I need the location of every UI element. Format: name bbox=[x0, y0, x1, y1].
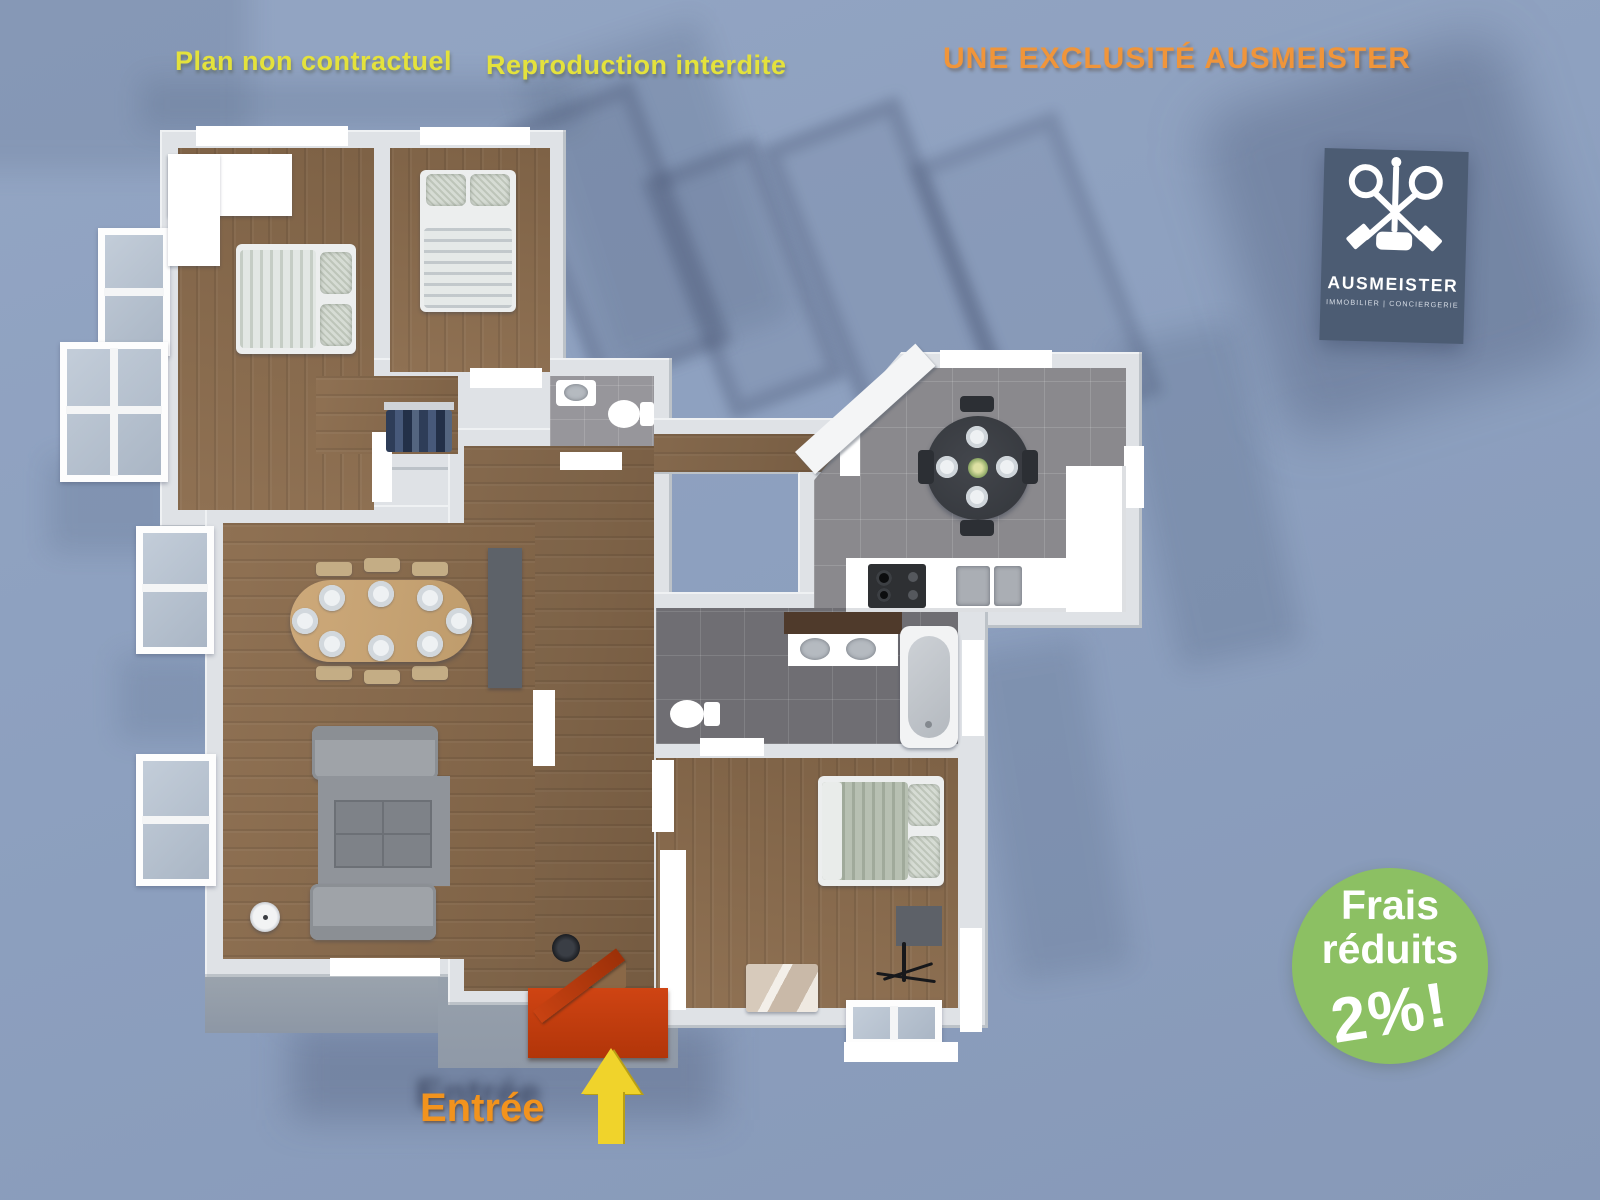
promo-badge: Frais réduits 2%! bbox=[1292, 868, 1488, 1064]
place-setting bbox=[319, 631, 345, 657]
pillow bbox=[320, 252, 352, 294]
window-sill bbox=[1124, 446, 1144, 508]
badge-line2: réduits bbox=[1322, 927, 1459, 971]
duvet-fold bbox=[822, 782, 842, 880]
entrance-arrow-icon bbox=[581, 1048, 641, 1094]
dining-chair bbox=[412, 562, 448, 576]
bathroom-sink bbox=[800, 638, 830, 660]
kitchen-counter-side bbox=[1066, 466, 1126, 612]
coffee-table bbox=[334, 800, 432, 868]
place-setting bbox=[319, 585, 345, 611]
sideboard bbox=[488, 548, 522, 688]
reproduction-notice: Reproduction interdite bbox=[486, 50, 787, 81]
closet-rail bbox=[384, 402, 454, 410]
opening-bedroom2 bbox=[470, 368, 542, 388]
dresser bbox=[168, 154, 220, 266]
balcony-window bbox=[136, 754, 216, 886]
pillow bbox=[426, 174, 466, 206]
kitchen-chair bbox=[960, 520, 994, 536]
bedroom-east-shadow bbox=[967, 638, 1132, 982]
dining-chair bbox=[316, 562, 352, 576]
dining-chair bbox=[412, 666, 448, 680]
place-setting bbox=[292, 608, 318, 634]
duvet bbox=[240, 250, 316, 348]
floor-lamp bbox=[250, 902, 280, 932]
entrance-wall-segment bbox=[660, 850, 686, 1010]
entrance-label: Entrée bbox=[420, 1086, 545, 1131]
window-sill bbox=[330, 958, 440, 976]
balcony-window bbox=[60, 342, 168, 482]
wc-sink bbox=[556, 380, 596, 406]
entrance-arrow-icon bbox=[598, 1092, 623, 1144]
plan-disclaimer: Plan non contractuel bbox=[175, 46, 452, 77]
window-sill bbox=[940, 350, 1052, 368]
pillow bbox=[470, 174, 510, 206]
opening-wc bbox=[560, 452, 622, 470]
place-setting bbox=[996, 456, 1018, 478]
sofa bbox=[310, 884, 436, 940]
place-setting bbox=[446, 608, 472, 634]
bench bbox=[746, 964, 818, 1012]
floorplan-render: Entrée Plan non contractuel Reproduction… bbox=[0, 0, 1600, 1200]
bed bbox=[420, 170, 516, 312]
place-setting bbox=[417, 631, 443, 657]
coat-stand bbox=[552, 934, 580, 962]
pillow bbox=[908, 784, 940, 826]
kitchen-sink bbox=[956, 566, 990, 606]
exclusivity-banner: UNE EXCLUSITÉ AUSMEISTER bbox=[943, 42, 1411, 76]
opening-hall-bedroom3 bbox=[652, 760, 674, 832]
bathtub bbox=[900, 626, 958, 748]
badge-value: 2%! bbox=[1326, 968, 1454, 1058]
balcony-window bbox=[98, 228, 170, 356]
kitchen-chair bbox=[960, 396, 994, 412]
drying-rack bbox=[876, 940, 938, 988]
place-setting bbox=[966, 426, 988, 448]
logo-tagline: IMMOBILIER | CONCIERGERIE bbox=[1326, 297, 1459, 310]
place-setting bbox=[966, 486, 988, 508]
kitchen-chair bbox=[918, 450, 934, 484]
bed bbox=[236, 244, 356, 354]
window-sill bbox=[196, 126, 348, 146]
window-sill bbox=[420, 127, 530, 145]
slab-apron bbox=[205, 977, 457, 1033]
logo-brand-text: AUSMEISTER bbox=[1327, 272, 1458, 297]
window-sill bbox=[844, 1042, 958, 1062]
place-setting bbox=[417, 585, 443, 611]
badge-line1: Frais bbox=[1341, 883, 1439, 927]
kitchen-chair bbox=[1022, 450, 1038, 484]
table-flowers bbox=[968, 458, 988, 478]
wall-shadow-top-left bbox=[140, 78, 580, 130]
dining-chair bbox=[364, 558, 400, 572]
pillow bbox=[320, 304, 352, 346]
opening-bathroom bbox=[700, 738, 764, 756]
place-setting bbox=[368, 635, 394, 661]
opening-living-hall bbox=[533, 690, 555, 766]
crossed-keys-gavel-icon bbox=[1333, 148, 1456, 269]
dining-chair bbox=[364, 670, 400, 684]
vanity-counter bbox=[784, 612, 902, 634]
place-setting bbox=[936, 456, 958, 478]
window-sill bbox=[960, 928, 982, 1032]
hanging-clothes bbox=[386, 410, 452, 452]
place-setting bbox=[368, 581, 394, 607]
window-sill bbox=[962, 640, 984, 736]
wc-toilet bbox=[608, 398, 654, 430]
stove bbox=[868, 564, 926, 608]
kitchen-sink bbox=[994, 566, 1022, 606]
bathroom-toilet bbox=[670, 698, 720, 730]
pillow bbox=[908, 836, 940, 878]
bedroom3-window bbox=[846, 1000, 942, 1046]
duvet bbox=[424, 228, 512, 308]
dining-chair bbox=[316, 666, 352, 680]
sofa bbox=[312, 726, 438, 780]
bathroom-sink bbox=[846, 638, 876, 660]
bed bbox=[818, 776, 944, 886]
agency-logo: AUSMEISTER IMMOBILIER | CONCIERGERIE bbox=[1319, 148, 1468, 344]
balcony-window bbox=[136, 526, 214, 654]
